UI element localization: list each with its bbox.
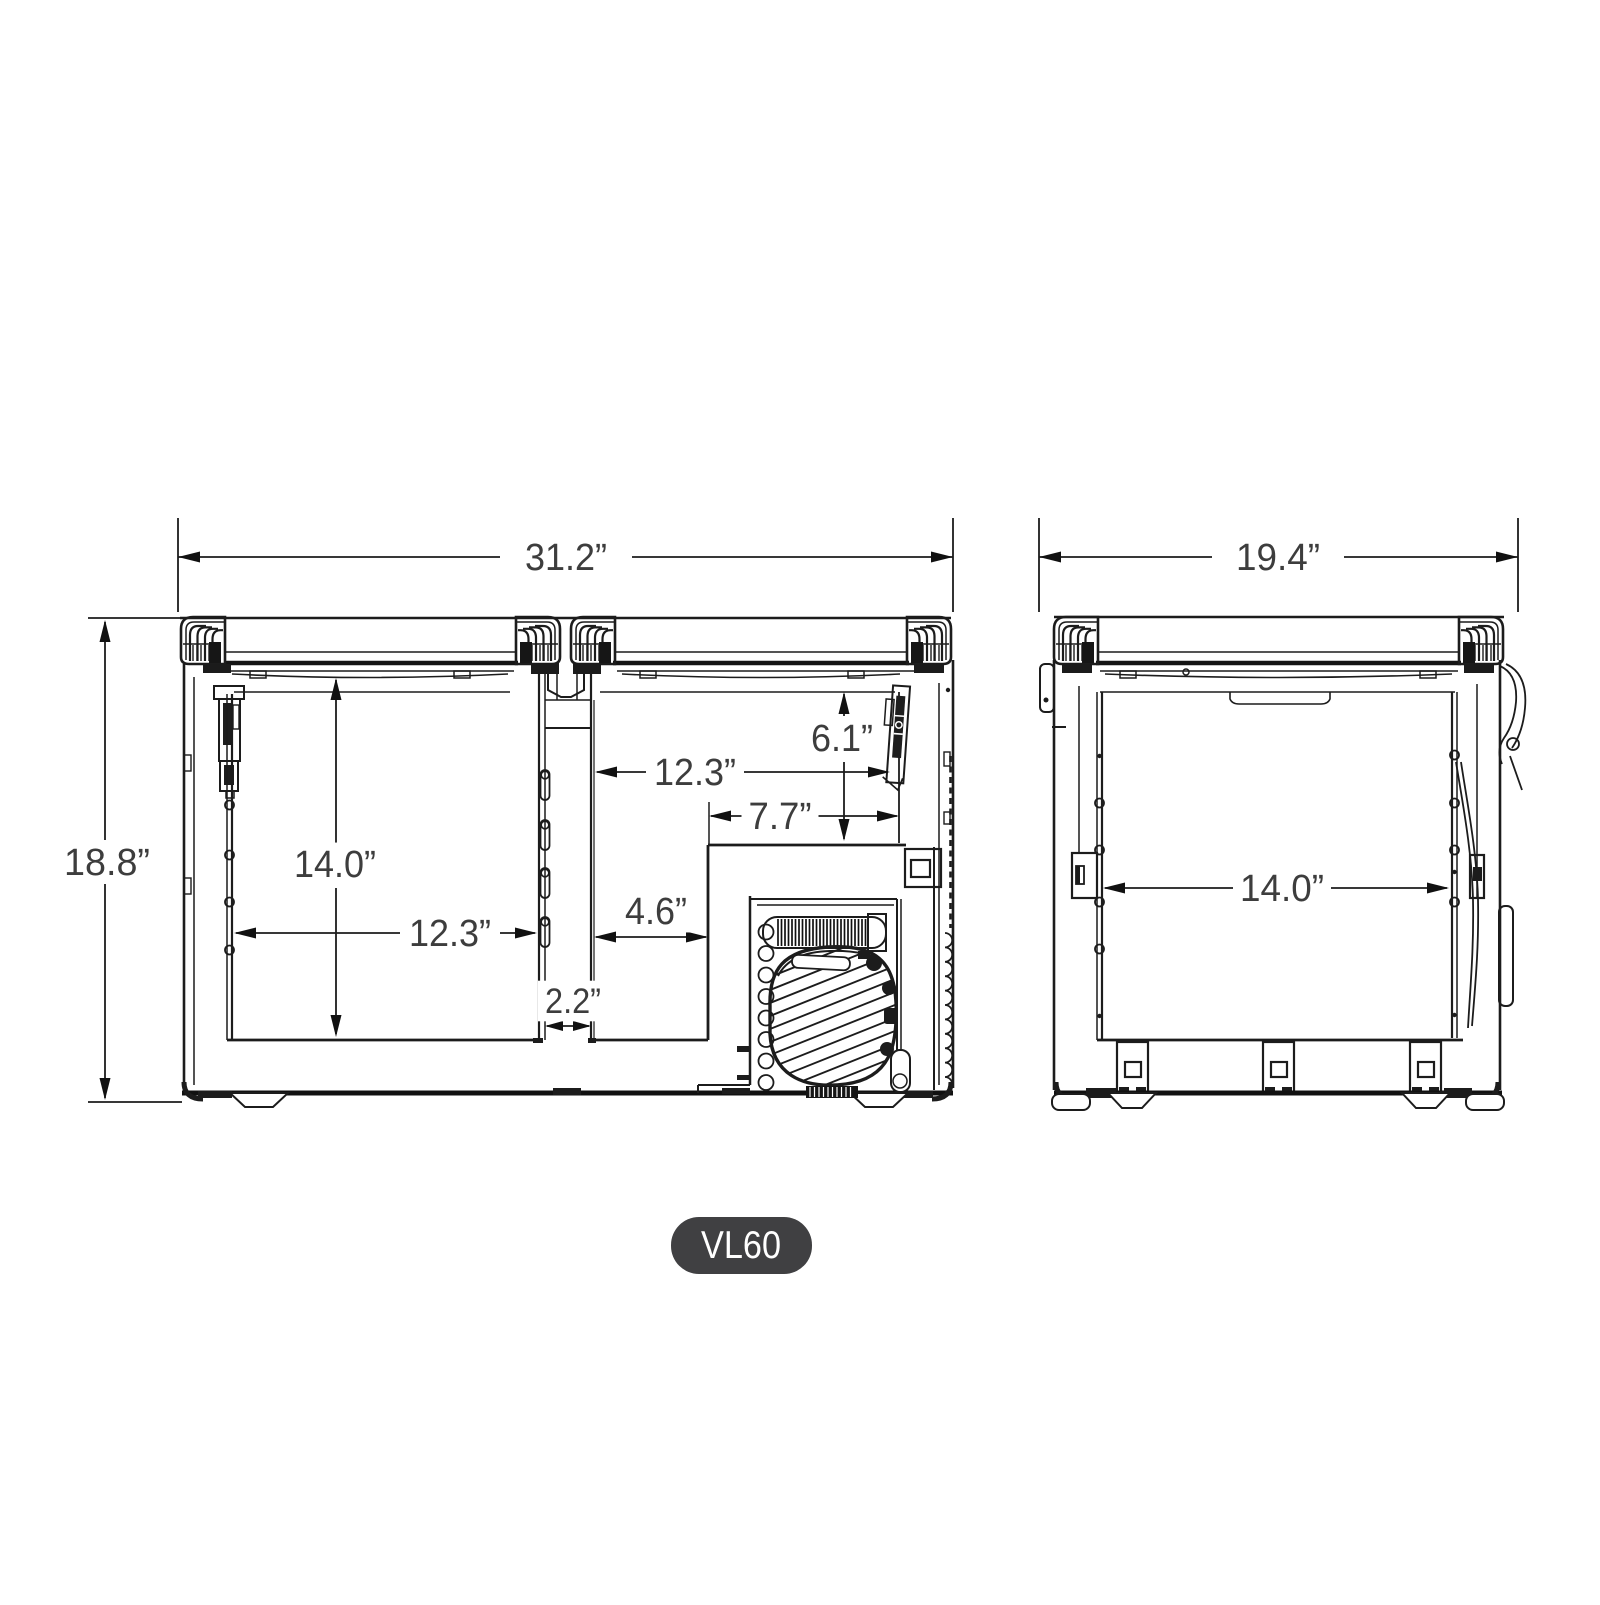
svg-text:4.6”: 4.6”: [625, 891, 687, 933]
svg-text:12.3”: 12.3”: [654, 752, 736, 794]
svg-text:6.1”: 6.1”: [811, 718, 873, 760]
svg-text:7.7”: 7.7”: [749, 796, 812, 838]
svg-text:12.3”: 12.3”: [409, 913, 491, 955]
svg-text:19.4”: 19.4”: [1236, 537, 1320, 579]
svg-text:14.0”: 14.0”: [294, 844, 376, 886]
svg-text:14.0”: 14.0”: [1240, 868, 1324, 910]
svg-text:18.8”: 18.8”: [64, 842, 150, 884]
svg-text:31.2”: 31.2”: [525, 537, 607, 579]
svg-text:VL60: VL60: [701, 1224, 781, 1267]
svg-text:2.2”: 2.2”: [545, 982, 601, 1021]
